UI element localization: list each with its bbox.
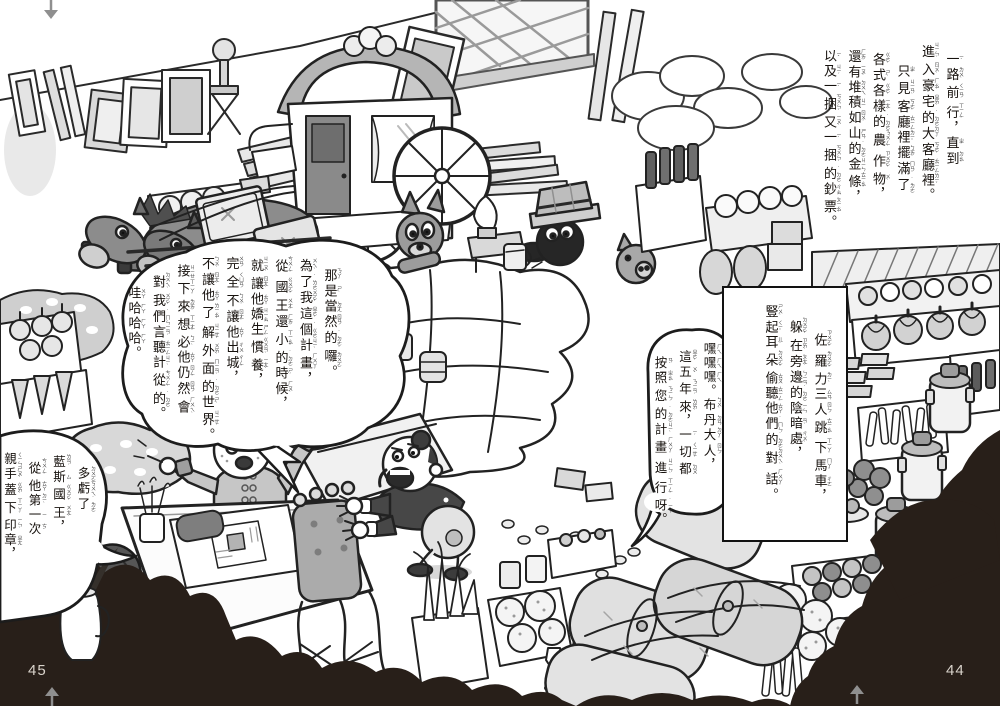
page-number-left: 45 bbox=[28, 662, 47, 679]
can bbox=[500, 562, 520, 588]
comic-book-spread: 一ㄧˊ路ㄌㄨˋ前ㄑㄧㄢˊ行ㄒㄧㄥˊ，直ㄓˊ到ㄉㄠˋ進ㄐㄧㄣˋ入ㄖㄨˋ豪ㄏㄠˊ宅ㄓ… bbox=[0, 0, 1000, 706]
quill-cup bbox=[140, 514, 164, 542]
royal-seal-stamp bbox=[227, 533, 245, 551]
speech-bubble-hey-text: 嘿ㄏㄟ嘿ㄏㄟ嘿ㄏㄟ。布ㄅㄨˋ丹ㄉㄢ大ㄉㄚˋ人ㄖㄣˊ，這ㄓㄜˋ五ㄨˇ年ㄋㄧㄢˊ來ㄌ… bbox=[649, 342, 725, 534]
narration-text: 佐ㄗㄨㄛˇ羅ㄌㄨㄛˊ力ㄌㄧˋ三ㄙㄢ人ㄖㄣˊ跳ㄊㄧㄠˋ下ㄒㄧㄚˋ馬ㄇㄚˇ車ㄔㄜ，躲… bbox=[759, 304, 835, 529]
page-number-right: 44 bbox=[946, 662, 965, 679]
speech-bubble-thanks-text: 多ㄉㄨㄛ虧ㄎㄨㄟ了˙ㄌㄜ藍ㄌㄢˊ斯ㄙ國ㄍㄨㄛˊ王ㄨㄤˊ，從ㄘㄨㄥˊ他ㄊㄚ第ㄉㄧˋ… bbox=[0, 452, 98, 620]
narration-box-mid-right: 佐ㄗㄨㄛˇ羅ㄌㄨㄛˊ力ㄌㄧˋ三ㄙㄢ人ㄖㄣˊ跳ㄊㄧㄠˋ下ㄒㄧㄚˋ馬ㄇㄚˇ車ㄔㄜ，躲… bbox=[722, 286, 848, 542]
down-arrow-icon bbox=[43, 0, 59, 20]
can bbox=[526, 556, 546, 582]
tankard bbox=[504, 244, 526, 270]
up-arrow-icon bbox=[849, 684, 865, 704]
up-arrow-icon bbox=[44, 686, 60, 706]
small-barrel bbox=[420, 352, 446, 382]
narration-box-top-right: 一ㄧˊ路ㄌㄨˋ前ㄑㄧㄢˊ行ㄒㄧㄥˊ，直ㄓˊ到ㄉㄠˋ進ㄐㄧㄣˋ入ㄖㄨˋ豪ㄏㄠˊ宅ㄓ… bbox=[817, 42, 966, 274]
speech-bubble-plan-text: 那ㄋㄚˋ是ㄕˋ當ㄉㄤ然ㄖㄢˊ的˙ㄉㄜ囉˙ㄌㄨㄛ。為ㄨㄟˋ了˙ㄌㄜ我ㄨㄛˇ這ㄓㄜˋ… bbox=[122, 256, 345, 474]
